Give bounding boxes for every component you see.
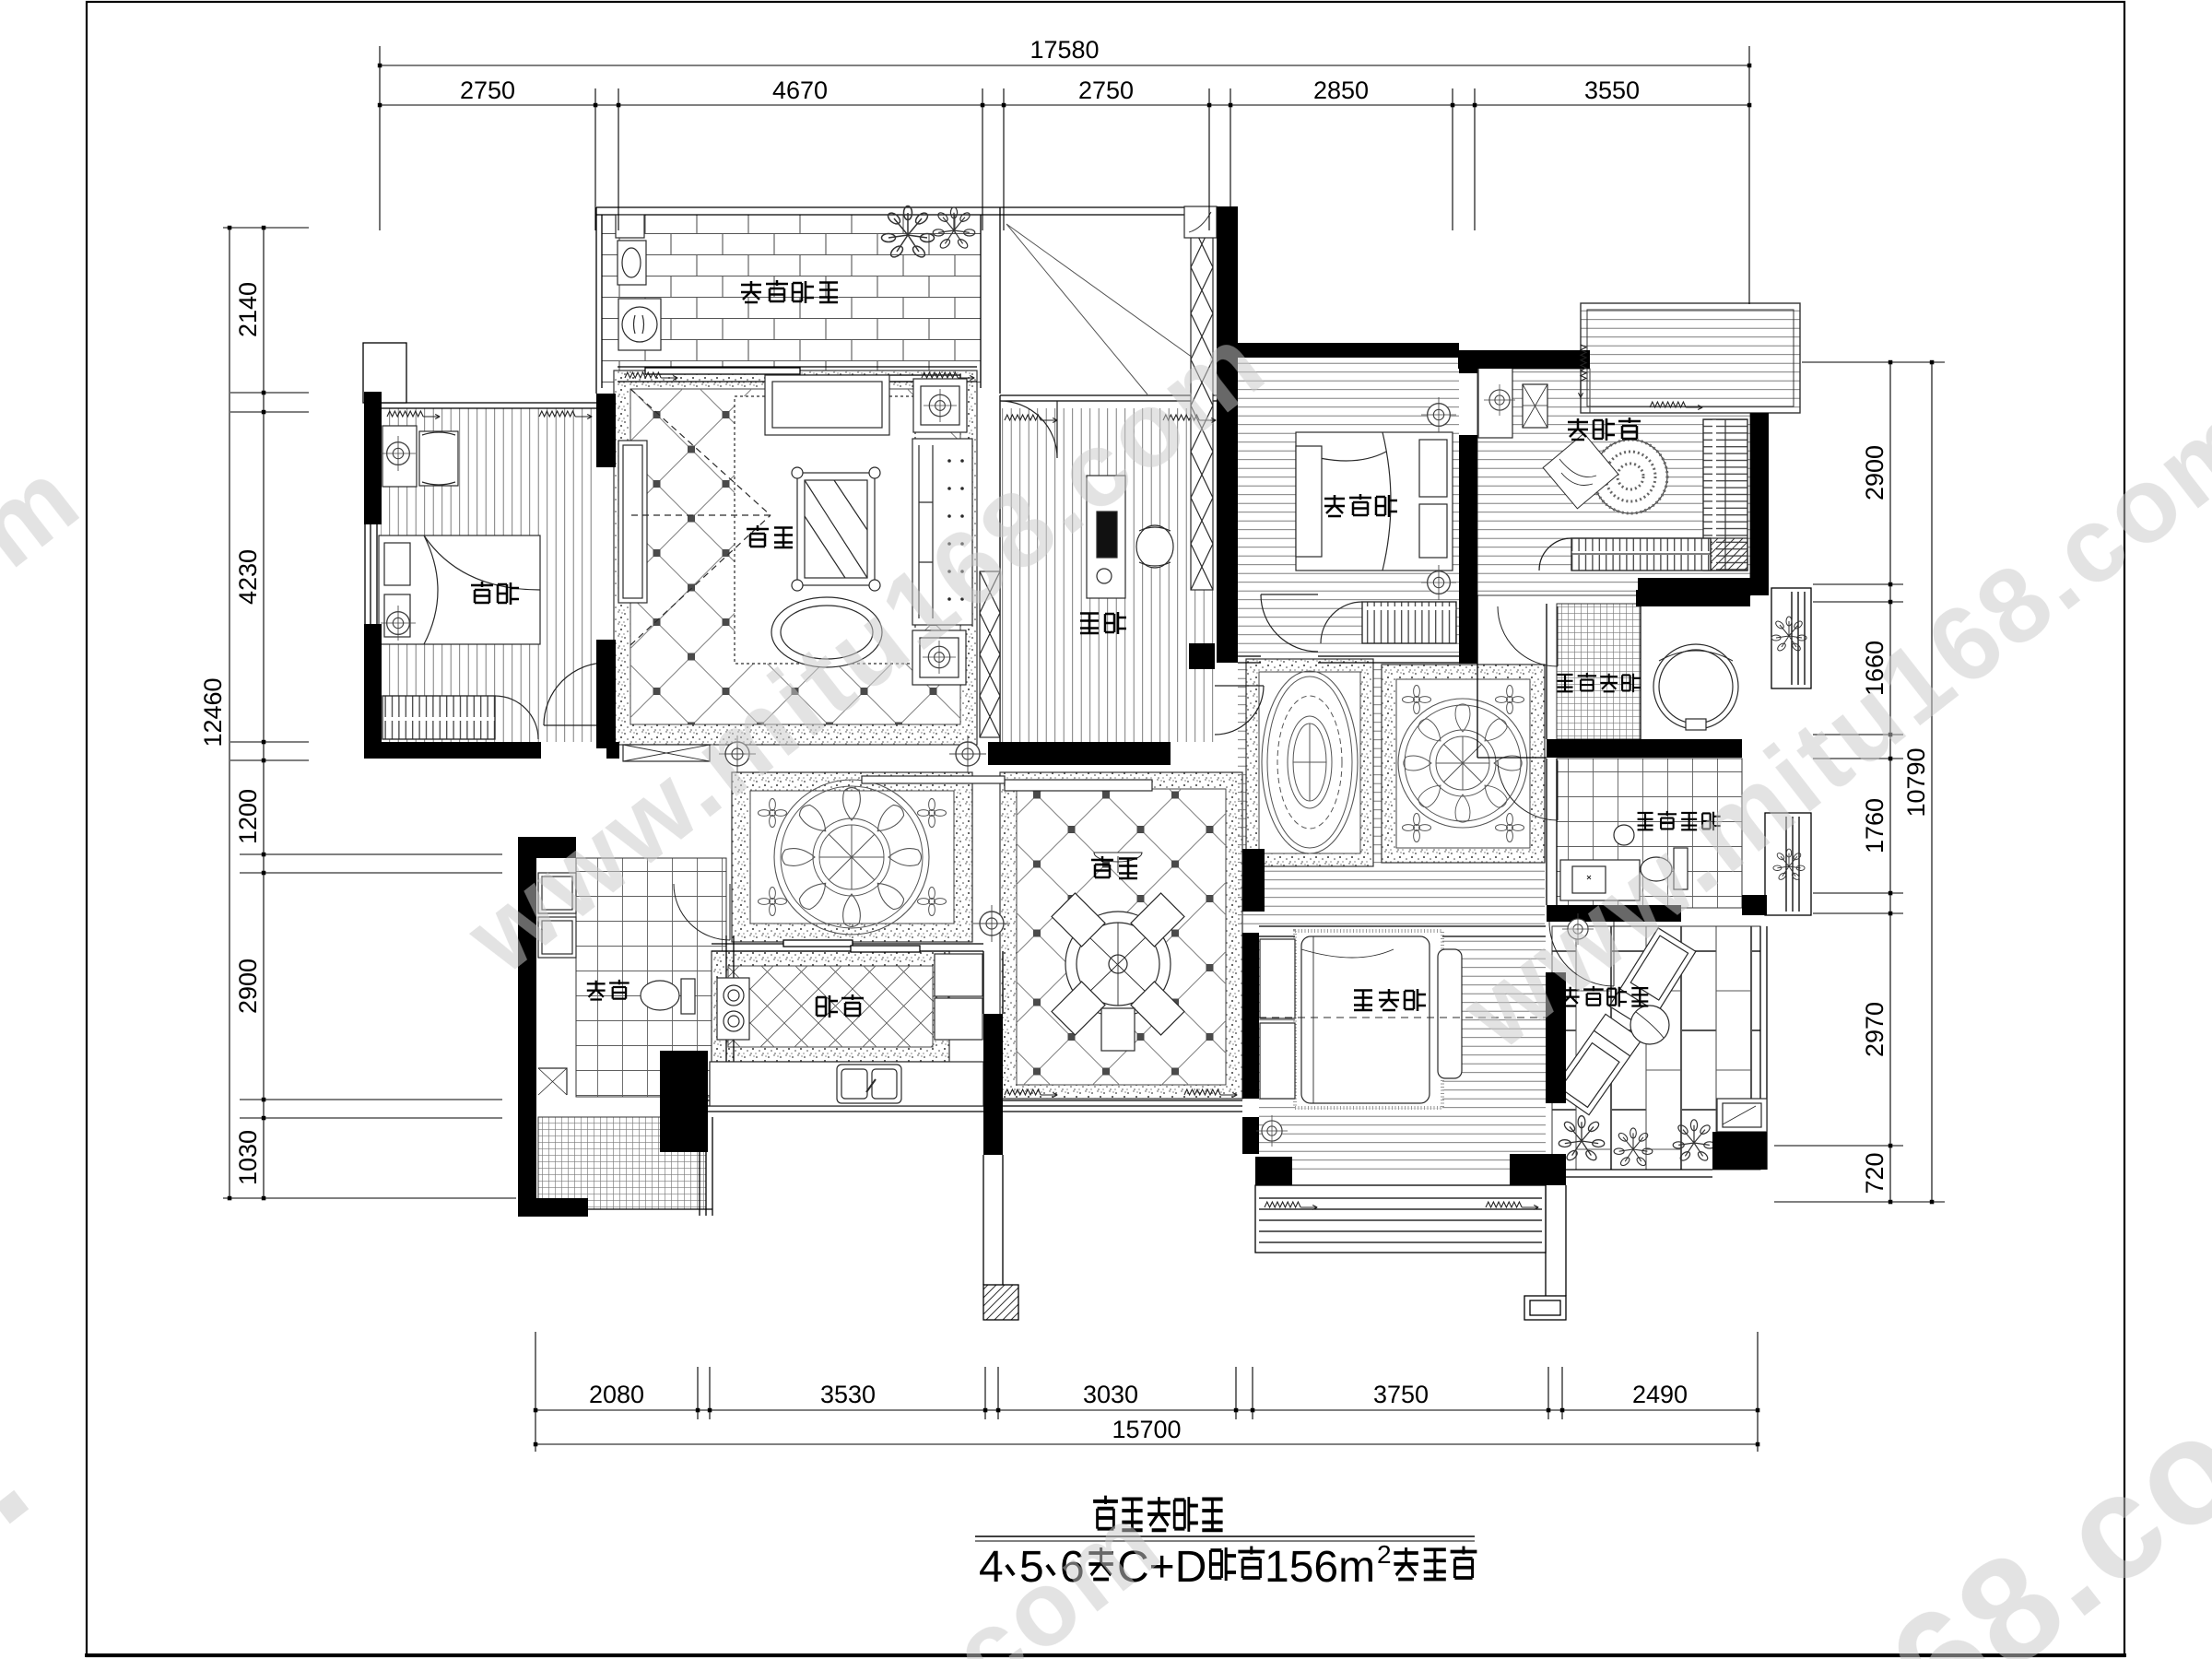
svg-text:2970: 2970: [1861, 1002, 1888, 1057]
svg-text:2750: 2750: [460, 76, 515, 104]
svg-text:1200: 1200: [234, 789, 262, 844]
svg-text:4670: 4670: [772, 76, 828, 104]
svg-text:2750: 2750: [1078, 76, 1134, 104]
svg-text:2900: 2900: [1861, 445, 1888, 500]
svg-text:12460: 12460: [199, 677, 227, 747]
svg-text:2080: 2080: [589, 1381, 644, 1408]
svg-text:2850: 2850: [1313, 76, 1369, 104]
svg-text:1030: 1030: [234, 1130, 262, 1185]
svg-text:2: 2: [1377, 1540, 1392, 1569]
svg-text:156m: 156m: [1265, 1543, 1375, 1592]
svg-text:2900: 2900: [234, 959, 262, 1014]
svg-text:720: 720: [1861, 1152, 1888, 1194]
svg-text:1760: 1760: [1861, 798, 1888, 853]
svg-text:3030: 3030: [1083, 1381, 1138, 1408]
svg-text:2490: 2490: [1632, 1381, 1688, 1408]
svg-text:3530: 3530: [820, 1381, 876, 1408]
svg-text:3550: 3550: [1584, 76, 1640, 104]
svg-text:2140: 2140: [234, 282, 262, 337]
svg-text:3750: 3750: [1373, 1381, 1429, 1408]
svg-text:15700: 15700: [1112, 1416, 1181, 1443]
svg-text:17580: 17580: [1030, 36, 1099, 64]
svg-text:4230: 4230: [234, 549, 262, 605]
